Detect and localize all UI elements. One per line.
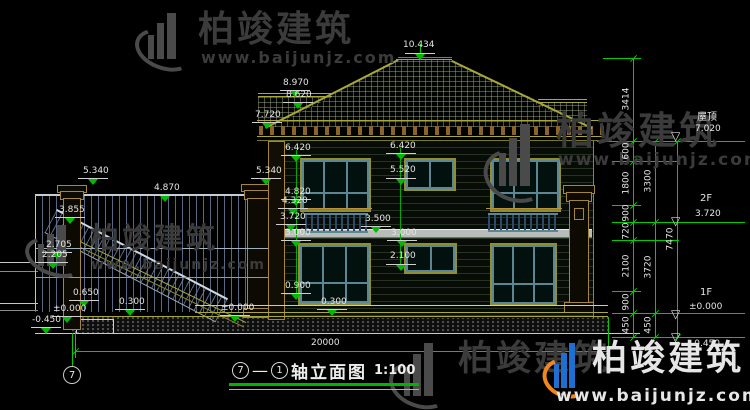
level-marker-open: ▽ <box>671 308 680 320</box>
watermark-url: www.baijunjz.com <box>556 388 750 405</box>
dim-label: -0.450 <box>32 316 61 325</box>
dim-label: 0.300 <box>119 298 145 307</box>
dim-label: 0.650 <box>73 289 99 298</box>
axis-circle-start: 7 <box>232 362 249 379</box>
dim-label: 3.720 <box>280 213 306 222</box>
elevation-drawing-canvas: 柏竣建筑 www.baijunjz.com 柏竣建筑 www.baijunjz.… <box>0 0 750 410</box>
dim-label: 900 <box>623 293 632 310</box>
dim-line <box>195 305 608 306</box>
dim-label: 900 <box>623 204 632 221</box>
balcony-railing-left <box>305 213 368 233</box>
level-marker <box>386 153 416 160</box>
axis-circle-end: 1 <box>271 362 288 379</box>
dim-label: 5.340 <box>83 167 109 176</box>
dim-line <box>633 58 634 337</box>
title-text: 轴立面图 <box>291 358 367 383</box>
dim-line <box>296 150 297 296</box>
level-marker <box>405 53 435 60</box>
window-1f-right <box>490 243 557 306</box>
dim-label: 1F <box>700 288 712 298</box>
dim-label: 450 <box>623 316 632 333</box>
watermark-url: www.baijunjz.com <box>201 50 396 66</box>
axis-grid-bubble: 7 <box>63 366 81 384</box>
dim-label: 0.300 <box>321 298 347 307</box>
level-marker <box>386 264 416 271</box>
dim-line <box>603 58 641 59</box>
dim-label: 7.720 <box>255 111 281 120</box>
dim-label: 1800 <box>623 172 632 195</box>
dim-label: ±0.000 <box>221 304 254 313</box>
dim-label: 600 <box>623 142 632 159</box>
level-marker <box>281 155 311 162</box>
title-scale: 1:100 <box>374 363 415 378</box>
dim-line <box>72 333 73 366</box>
level-marker <box>361 226 391 233</box>
level-marker <box>38 262 68 269</box>
dim-label: 3.500 <box>365 215 391 224</box>
dim-label: 7470 <box>667 228 676 251</box>
dim-label: 6.420 <box>390 142 416 151</box>
watermark-logo <box>138 6 194 68</box>
balcony-railing-right <box>488 213 558 232</box>
dim-line <box>35 333 640 334</box>
eave-band <box>257 120 603 141</box>
dim-label: 5.340 <box>256 167 282 176</box>
level-marker <box>317 309 347 316</box>
watermark-text: 柏竣建筑 <box>592 342 744 377</box>
dim-label: 5.520 <box>390 166 416 175</box>
dim-label: 10.434 <box>403 41 435 50</box>
level-marker <box>78 178 108 185</box>
rafter-tails <box>259 126 605 135</box>
level-marker <box>387 240 417 247</box>
dim-label: 3.000 <box>391 229 417 238</box>
fascia-line <box>257 136 603 137</box>
level-marker <box>55 217 85 224</box>
dim-line <box>72 316 608 317</box>
level-marker <box>252 122 282 129</box>
level-marker <box>281 293 311 300</box>
watermark-url: www.baijunjz.com <box>91 258 266 272</box>
dim-label: 屋顶 <box>697 113 717 123</box>
watermark-text: 柏竣建筑 <box>198 12 354 48</box>
dim-label: 4.320 <box>282 197 308 206</box>
dim-line <box>538 102 587 103</box>
deck-edge-lower <box>0 303 38 311</box>
level-marker <box>251 178 281 185</box>
dim-label: 3414 <box>623 88 632 111</box>
dim-label: 450 <box>645 316 654 333</box>
fascia-line <box>257 140 603 141</box>
dim-line <box>75 331 76 358</box>
level-marker <box>281 240 311 247</box>
level-marker <box>31 327 61 334</box>
dim-line <box>655 141 656 337</box>
dim-label: 6.420 <box>285 144 311 153</box>
dim-label: 4.870 <box>154 184 180 193</box>
axis-dash: — <box>252 361 268 380</box>
watermark-logo <box>488 114 550 198</box>
dim-label: 2F <box>700 194 712 204</box>
dim-label: 720 <box>623 222 632 239</box>
dim-label: 2100 <box>623 255 632 278</box>
right-pillar-detail <box>574 208 584 220</box>
dim-label: 3720 <box>645 256 654 279</box>
level-marker <box>115 309 145 316</box>
porch-pillar-shaft <box>247 198 269 310</box>
level-marker-open: ▽ <box>671 130 680 142</box>
dim-label: 8.970 <box>283 79 309 88</box>
dim-label: 8.620 <box>286 91 312 100</box>
dim-label: 3.855 <box>59 206 85 215</box>
level-marker-open: ▽ <box>671 215 680 227</box>
watermark-text: 柏竣建筑 <box>90 224 218 253</box>
dim-label: 7.020 <box>695 125 721 134</box>
drawing-title: 7 — 1 轴立面图 1:100 <box>232 358 415 383</box>
dim-label: 20000 <box>311 339 340 348</box>
level-marker <box>386 178 416 185</box>
watermark-url: www.baijunjz.com <box>558 152 750 169</box>
dim-label: 3.000 <box>285 229 311 238</box>
dim-line <box>486 208 562 209</box>
dim-label: 2.705 <box>46 241 72 250</box>
dim-label: ±0.000 <box>689 303 722 312</box>
level-marker <box>220 315 250 322</box>
level-marker <box>283 102 313 109</box>
fascia-line <box>257 120 603 121</box>
ground-hatch <box>72 317 608 333</box>
title-underline-thin <box>229 389 419 390</box>
level-marker <box>150 195 180 202</box>
dim-line <box>612 291 641 292</box>
dim-line <box>538 99 587 100</box>
dim-label: 0.900 <box>285 282 311 291</box>
dim-label: ±0.000 <box>53 305 86 314</box>
dim-label: 3.720 <box>695 210 721 219</box>
dim-label: 2.205 <box>42 251 68 260</box>
dim-line <box>195 312 608 313</box>
dim-label: 2.100 <box>390 252 416 261</box>
dim-label: 3300 <box>645 170 654 193</box>
title-underline-green <box>229 383 419 386</box>
